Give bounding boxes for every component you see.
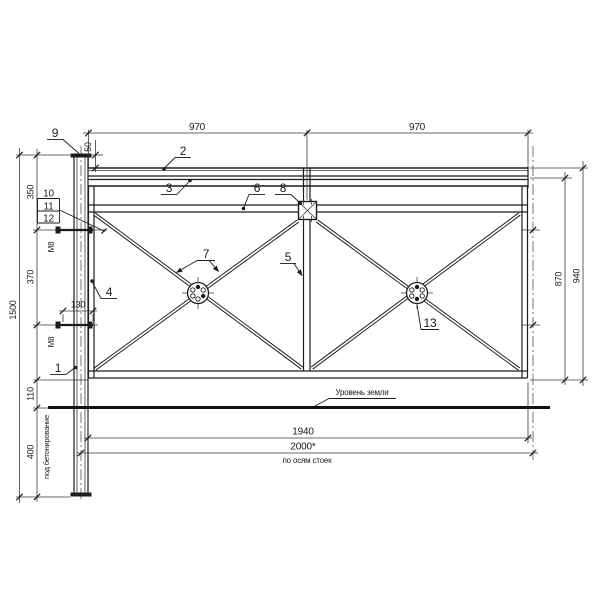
callout-5: 5 [280,250,302,276]
concreting-note: под бетонирование [42,415,51,479]
panel-frame [89,168,528,378]
dim-110-label: 110 [26,387,36,401]
dim-2000-label: 2000* [290,442,315,453]
dim-1500-label: 1500 [8,300,18,319]
bolt-m8-lower-label: М8 [47,336,56,347]
dim-top-left-label: 970 [189,122,206,133]
dim-top-spans: 970 970 [83,122,533,136]
dim-50-label: 50 [83,142,93,152]
dim-1940-label: 1940 [292,427,314,438]
dim-130-label: 130 [71,300,86,310]
callout-3: 3 [161,179,192,195]
dim-350-label: 350 [26,185,36,200]
bolt-m8-upper-label: М8 [47,241,56,252]
x-braces [95,214,520,369]
handrail [88,168,528,176]
dim-400-label: 400 [26,445,36,460]
callout-2: 2 [162,144,191,171]
callout-2-label: 2 [180,144,187,158]
dim-bolt: 130 М8 М8 [47,241,97,347]
drawing-canvas: 970 970 50 350 370 110 400 под бетониров… [0,0,600,600]
callout-7-label: 7 [203,247,210,261]
dim-bottom-spans: 1940 2000* по осям стоек [77,427,538,466]
callout-9: 9 [47,126,79,154]
dim-total-height: 1500 [8,148,23,503]
post-bottom-cap [71,493,92,497]
callout-8-label: 8 [280,181,287,195]
ground-level-text: Уровень земли [335,388,388,397]
callout-10-label: 10 [43,189,54,200]
callout-8: 8 [275,181,302,205]
callout-4-label: 4 [106,285,113,299]
callout-9-label: 9 [52,126,59,140]
callout-3-label: 3 [166,181,173,195]
ground-label: Уровень земли [314,388,396,407]
callout-6-label: 6 [254,181,261,195]
callout-1: 1 [50,361,77,375]
callout-13-label: 13 [424,316,437,330]
callout-1-label: 1 [55,361,62,375]
dim-right-heights: 870 940 [554,161,587,386]
fence-elevation-drawing: 970 970 50 350 370 110 400 под бетониров… [0,0,600,600]
callout-7: 7 [177,247,219,273]
callout-5-label: 5 [285,250,292,264]
upper-rail [88,166,528,188]
dim-870-label: 870 [554,272,564,287]
dim-top-right-label: 970 [409,122,426,133]
axes-note: по осям стоек [283,456,333,465]
dim-940-label: 940 [572,269,582,284]
dim-370-label: 370 [26,270,36,285]
anchor-bolt-lower [33,322,98,329]
callout-stack-10-11-12: 10 11 12 [38,189,107,234]
